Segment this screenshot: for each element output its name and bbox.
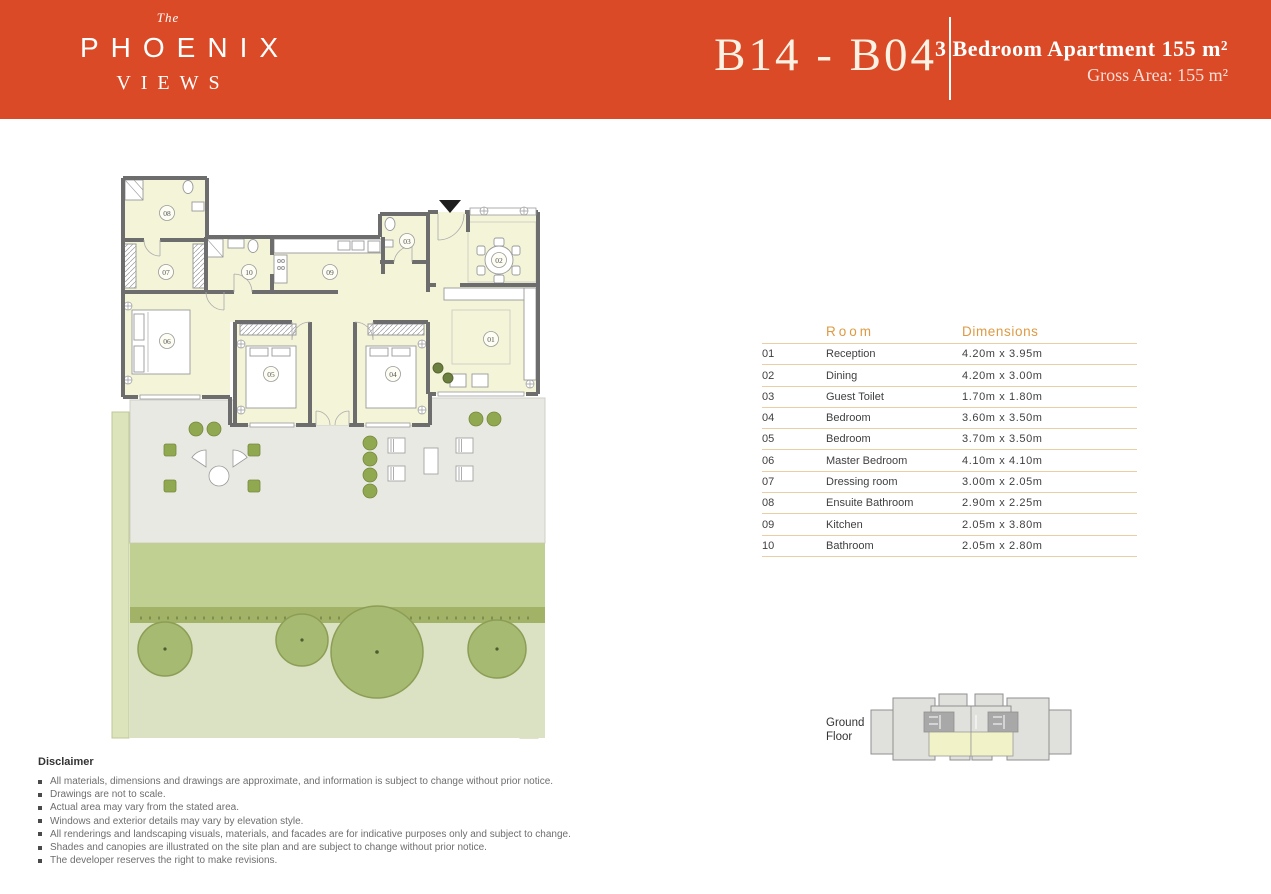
table-row: 03 Guest Toilet 1.70m x 1.80m [762, 387, 1137, 408]
unit-code: B14 - B04 [714, 28, 937, 82]
room-dimensions: 4.20m x 3.95m [962, 348, 1137, 360]
header-unit-info: 3 Bedroom Apartment 155 m² Gross Area: 1… [935, 36, 1228, 86]
header-banner: The PHOENIX VIEWS B14 - B04 3 Bedroom Ap… [0, 0, 1271, 119]
room-label-05: 05 [267, 370, 275, 379]
room-label-09: 09 [326, 268, 334, 277]
room-dimensions: 3.70m x 3.50m [962, 433, 1137, 445]
gross-area: Gross Area: 155 m² [935, 65, 1228, 86]
room-dimensions: 2.05m x 3.80m [962, 519, 1137, 531]
room-dimensions: 4.20m x 3.00m [962, 370, 1137, 382]
room-name: Bathroom [826, 540, 962, 552]
table-row: 09 Kitchen 2.05m x 3.80m [762, 514, 1137, 535]
room-number: 08 [762, 497, 826, 509]
table-row: 05 Bedroom 3.70m x 3.50m [762, 429, 1137, 450]
highlighted-units [929, 732, 1013, 756]
room-label-03: 03 [403, 237, 411, 246]
room-dimensions: 3.60m x 3.50m [962, 412, 1137, 424]
ground-floor-label: Ground Floor [826, 716, 864, 744]
room-number: 03 [762, 391, 826, 403]
disclaimer-item: Shades and canopies are illustrated on t… [38, 841, 598, 854]
table-row: 01 Reception 4.20m x 3.95m [762, 344, 1137, 365]
table-header-dimensions: Dimensions [962, 324, 1137, 339]
disclaimer-item: All renderings and landscaping visuals, … [38, 828, 598, 841]
room-number: 06 [762, 455, 826, 467]
disclaimer-item: Windows and exterior details may vary by… [38, 815, 598, 828]
room-table-body: 01 Reception 4.20m x 3.95m 02 Dining 4.2… [762, 344, 1137, 557]
table-row: 08 Ensuite Bathroom 2.90m x 2.25m [762, 493, 1137, 514]
disclaimer-item: Drawings are not to scale. [38, 788, 598, 801]
room-label-01: 01 [487, 335, 495, 344]
brand-logo: The PHOENIX VIEWS [68, 10, 268, 95]
room-name: Guest Toilet [826, 391, 962, 403]
room-name: Reception [826, 348, 962, 360]
room-name: Dining [826, 370, 962, 382]
table-row: 02 Dining 4.20m x 3.00m [762, 365, 1137, 386]
brand-name: PHOENIX [68, 32, 268, 64]
table-header-row: Room Dimensions [762, 320, 1137, 344]
table-row: 07 Dressing room 3.00m x 2.05m [762, 472, 1137, 493]
room-label-07: 07 [162, 268, 170, 277]
entrance-arrow-icon [439, 200, 461, 213]
disclaimer-item: The developer reserves the right to make… [38, 854, 598, 867]
room-number: 07 [762, 476, 826, 488]
apartment-title: 3 Bedroom Apartment 155 m² [935, 36, 1228, 62]
room-name: Bedroom [826, 412, 962, 424]
room-number: 05 [762, 433, 826, 445]
brand-the: The [68, 10, 268, 26]
room-dimensions: 3.00m x 2.05m [962, 476, 1137, 488]
key-plan [866, 684, 1076, 772]
room-name: Kitchen [826, 519, 962, 531]
room-dimensions: 2.05m x 2.80m [962, 540, 1137, 552]
disclaimer-item: Actual area may vary from the stated are… [38, 801, 598, 814]
disclaimer-title: Disclaimer [38, 756, 598, 768]
room-label-06: 06 [163, 337, 171, 346]
table-header-room: Room [826, 324, 962, 339]
table-row: 10 Bathroom 2.05m x 2.80m [762, 536, 1137, 557]
room-number: 02 [762, 370, 826, 382]
brand-sub: VIEWS [68, 72, 268, 95]
room-name: Bedroom [826, 433, 962, 445]
room-dimensions: 1.70m x 1.80m [962, 391, 1137, 403]
room-label-10: 10 [245, 268, 253, 277]
room-name: Ensuite Bathroom [826, 497, 962, 509]
room-label-08: 08 [163, 209, 171, 218]
room-number: 04 [762, 412, 826, 424]
disclaimer-list: All materials, dimensions and drawings a… [38, 775, 598, 867]
table-row: 04 Bedroom 3.60m x 3.50m [762, 408, 1137, 429]
room-number: 10 [762, 540, 826, 552]
room-label-04: 04 [389, 370, 397, 379]
room-number: 01 [762, 348, 826, 360]
room-dimensions: 2.90m x 2.25m [962, 497, 1137, 509]
room-name: Dressing room [826, 476, 962, 488]
room-dimensions-table: Room Dimensions 01 Reception 4.20m x 3.9… [762, 320, 1137, 557]
room-label-02: 02 [495, 256, 503, 265]
room-number: 09 [762, 519, 826, 531]
room-dimensions: 4.10m x 4.10m [962, 455, 1137, 467]
floor-plan: 01 02 03 04 05 06 07 08 09 10 [100, 162, 550, 754]
disclaimer-section: Disclaimer All materials, dimensions and… [38, 756, 598, 867]
room-name: Master Bedroom [826, 455, 962, 467]
disclaimer-item: All materials, dimensions and drawings a… [38, 775, 598, 788]
garden-area [112, 398, 545, 738]
table-row: 06 Master Bedroom 4.10m x 4.10m [762, 450, 1137, 471]
